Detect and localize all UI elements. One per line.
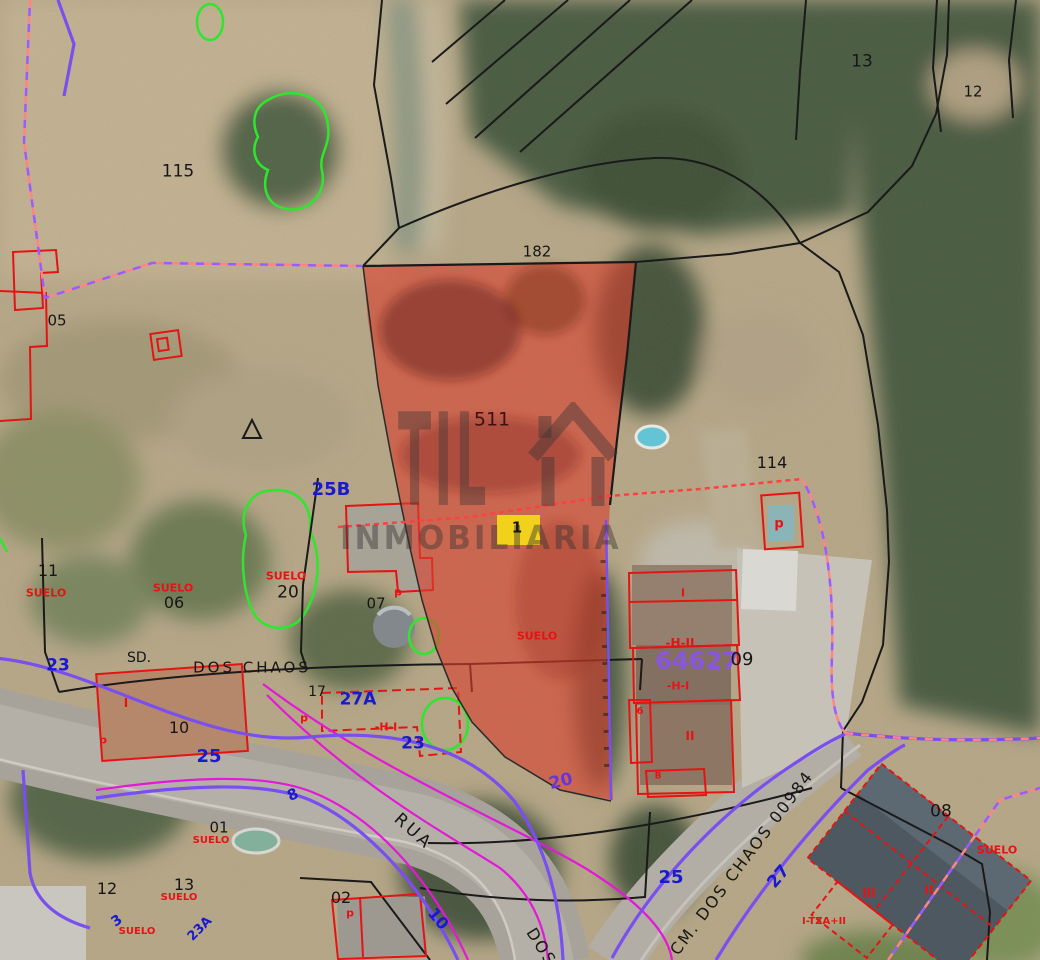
marker-1-box[interactable]	[497, 515, 540, 545]
cadastral-map[interactable]: TIL INMOBILIARIA 11513121820551111425B11…	[0, 0, 1040, 960]
aerial-basemap	[0, 0, 1040, 960]
